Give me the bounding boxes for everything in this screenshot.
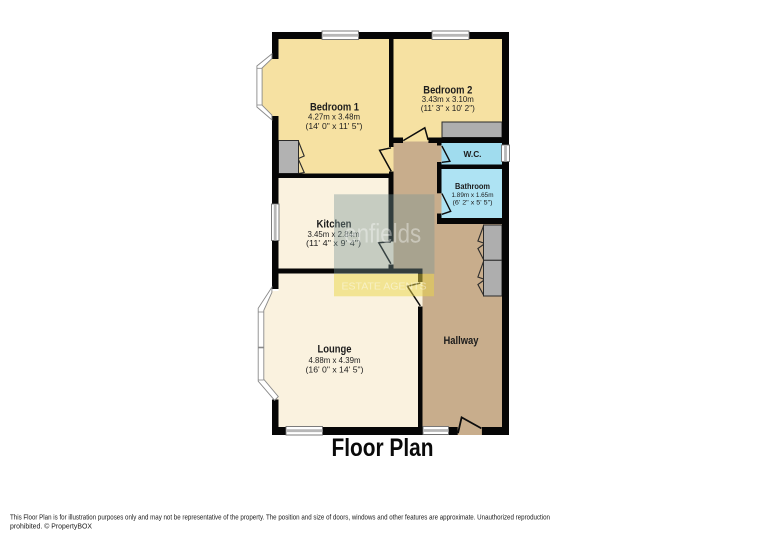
svg-text:(6' 2" x 5' 5"): (6' 2" x 5' 5"): [453, 200, 493, 207]
svg-text:Floor Plan: Floor Plan: [332, 435, 434, 462]
svg-text:enfields: enfields: [344, 219, 421, 249]
svg-text:(16' 0" x 14' 5"): (16' 0" x 14' 5"): [306, 366, 364, 375]
svg-text:4.27m x 3.48m: 4.27m x 3.48m: [308, 113, 360, 122]
svg-text:W.C.: W.C.: [464, 149, 482, 159]
svg-text:Hallway: Hallway: [444, 335, 479, 347]
svg-text:Bathroom: Bathroom: [455, 182, 490, 191]
svg-text:(14' 0" x 11' 5"): (14' 0" x 11' 5"): [306, 122, 363, 131]
svg-text:3.43m x 3.10m: 3.43m x 3.10m: [422, 95, 474, 104]
svg-text:ESTATE AGENTS: ESTATE AGENTS: [342, 281, 427, 293]
svg-text:Bedroom 1: Bedroom 1: [310, 101, 359, 113]
svg-text:prohibited. © PropertyBOX: prohibited. © PropertyBOX: [10, 522, 92, 530]
svg-text:(11' 3" x 10' 2"): (11' 3" x 10' 2"): [421, 104, 475, 113]
svg-text:1.89m x 1.65m: 1.89m x 1.65m: [452, 192, 494, 199]
svg-text:Lounge: Lounge: [318, 344, 352, 356]
svg-text:This Floor Plan is for illustr: This Floor Plan is for illustration purp…: [10, 514, 550, 521]
svg-text:4.88m x 4.39m: 4.88m x 4.39m: [309, 356, 361, 365]
